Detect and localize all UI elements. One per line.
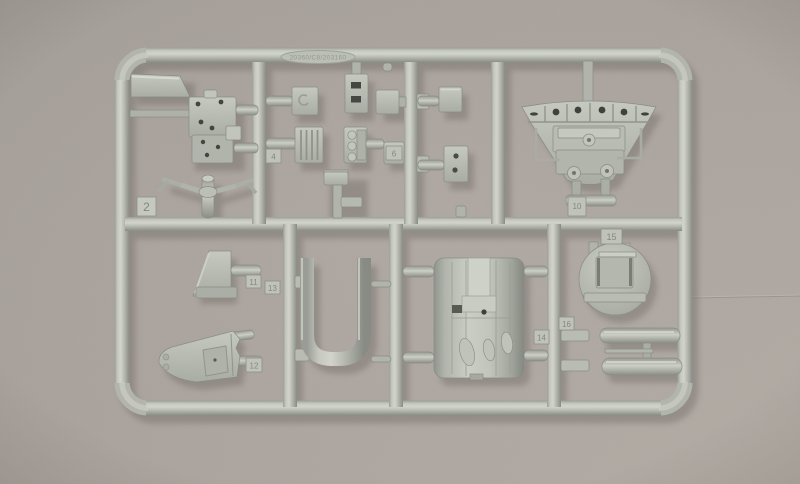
photo-of-model-sprue: 20360/C8/203160: [0, 0, 800, 484]
sprue-photo-svg: 20360/C8/203160: [0, 0, 800, 484]
photo-vignette: [0, 0, 800, 484]
